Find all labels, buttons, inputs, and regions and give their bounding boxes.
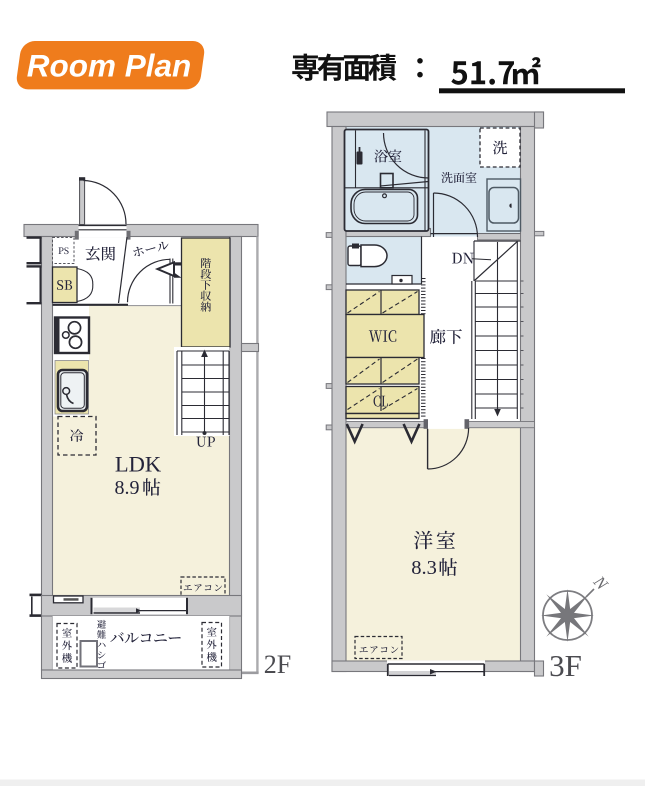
svg-text:3F: 3F xyxy=(549,648,582,683)
svg-text:2F: 2F xyxy=(264,650,291,679)
svg-text:8.9: 8.9 xyxy=(115,477,140,499)
svg-text:LDK: LDK xyxy=(115,452,162,477)
svg-text:8.3: 8.3 xyxy=(411,557,437,579)
svg-text:Room Plan: Room Plan xyxy=(27,48,192,84)
